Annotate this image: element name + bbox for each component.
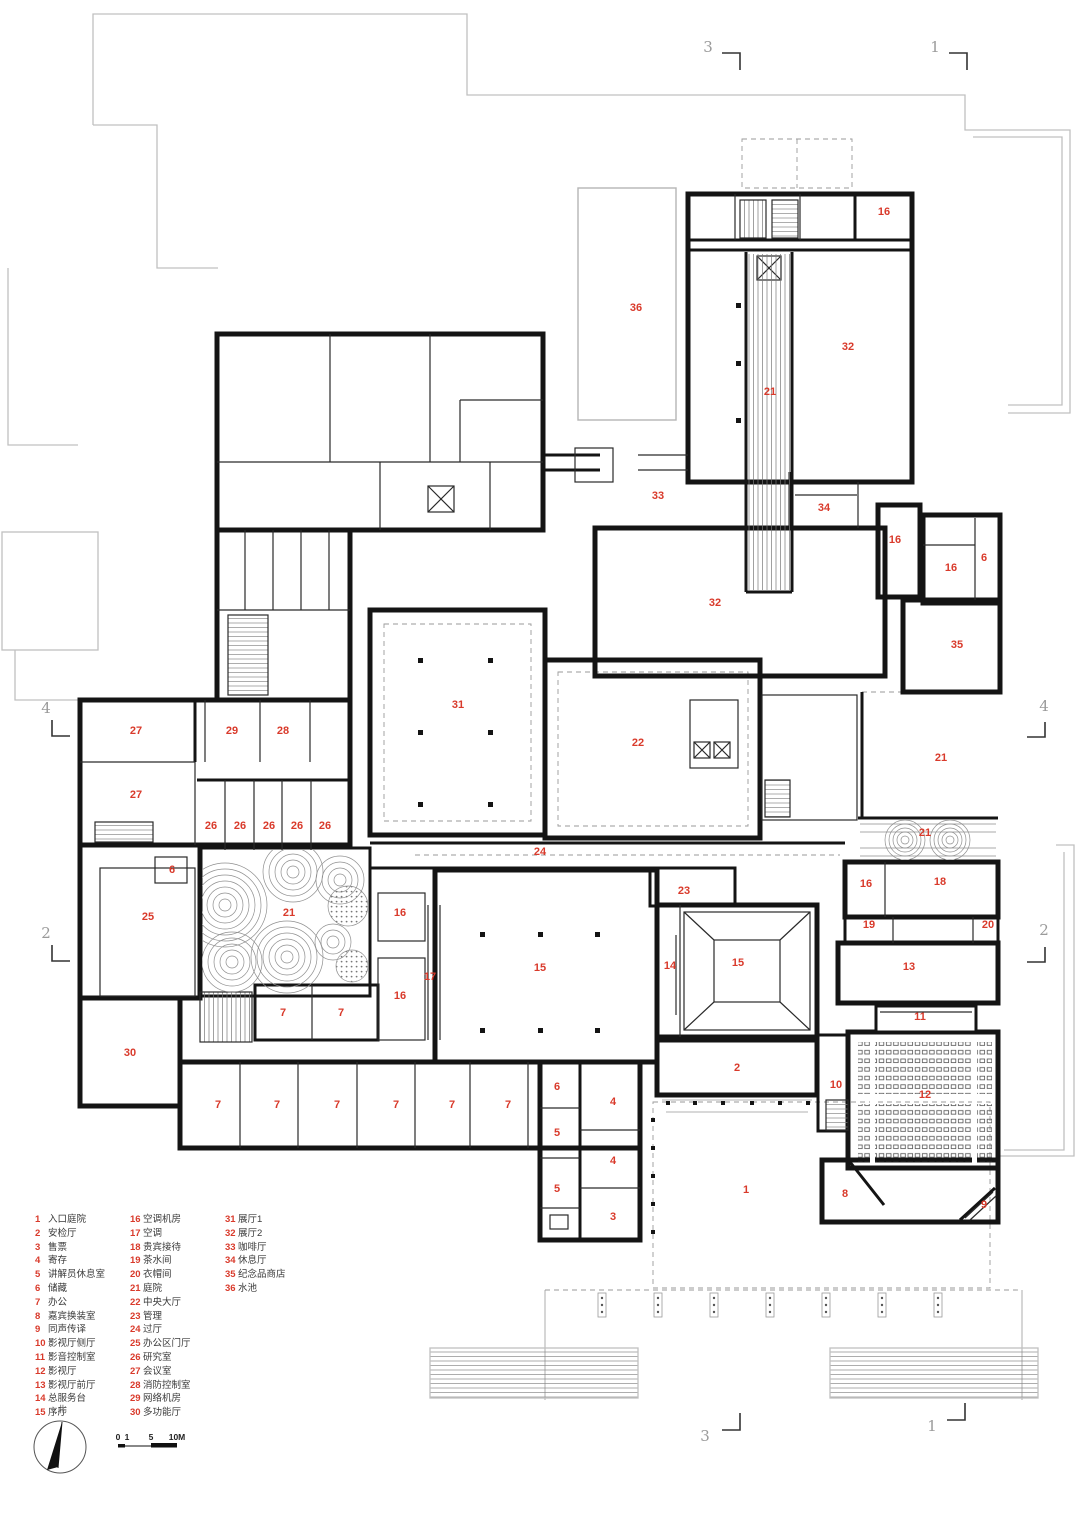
scale-tick-1: 1 xyxy=(125,1432,130,1442)
room-label-7: 7 xyxy=(280,1007,286,1019)
north-arrow xyxy=(34,1421,86,1473)
legend-item-number: 14 xyxy=(35,1392,48,1406)
grid-marker-1: 1 xyxy=(927,1417,937,1435)
room-label-33: 33 xyxy=(652,490,664,502)
legend-item-number: 30 xyxy=(130,1406,143,1420)
scale-bar xyxy=(118,1443,177,1448)
legend-item-label: 售票 xyxy=(48,1242,67,1253)
room-label-21: 21 xyxy=(764,386,776,398)
room-label-18: 18 xyxy=(934,876,946,888)
room-label-20: 20 xyxy=(982,919,994,931)
legend-item-34: 34休息厅 xyxy=(225,1254,320,1268)
legend-column-3: 31展厅132展厅233咖啡厅34休息厅35纪念品商店36水池 xyxy=(225,1213,320,1296)
room-label-27: 27 xyxy=(130,725,142,737)
legend-item-26: 26研究室 xyxy=(130,1351,225,1365)
room-label-14: 14 xyxy=(664,960,676,972)
legend-item-label: 影视厅前厅 xyxy=(48,1380,96,1391)
legend-item-label: 寄存 xyxy=(48,1255,67,1266)
room-label-19: 19 xyxy=(863,919,875,931)
legend-item-10: 10影视厅侧厅 xyxy=(35,1337,130,1351)
legend-item-13: 13影视厅前厅 xyxy=(35,1379,130,1393)
legend-item-25: 25办公区门厅 xyxy=(130,1337,225,1351)
legend-item-29: 29网络机房 xyxy=(130,1392,225,1406)
room-label-34: 34 xyxy=(818,502,830,514)
legend-item-18: 18贵宾接待 xyxy=(130,1241,225,1255)
room-label-5: 5 xyxy=(554,1127,560,1139)
grid-marker-2: 2 xyxy=(41,924,51,942)
room-label-26: 26 xyxy=(291,820,303,832)
room-label-22: 22 xyxy=(632,737,644,749)
room-label-25: 25 xyxy=(142,911,154,923)
legend: 1入口庭院2安检厅3售票4寄存5讲解员休息室6储藏7办公8嘉宾换装室9同声传译1… xyxy=(35,1213,320,1420)
legend-item-28: 28消防控制室 xyxy=(130,1379,225,1393)
legend-item-15: 15序厅 xyxy=(35,1406,130,1420)
room-label-6: 6 xyxy=(169,864,175,876)
legend-item-number: 31 xyxy=(225,1213,238,1227)
legend-item-label: 消防控制室 xyxy=(143,1380,191,1391)
scale-tick-5: 5 xyxy=(149,1432,154,1442)
legend-item-number: 8 xyxy=(35,1310,48,1324)
legend-item-label: 影视厅侧厅 xyxy=(48,1338,96,1349)
legend-item-label: 讲解员休息室 xyxy=(48,1269,105,1280)
legend-item-number: 1 xyxy=(35,1213,48,1227)
legend-item-label: 会议室 xyxy=(143,1366,172,1377)
legend-item-label: 茶水间 xyxy=(143,1255,172,1266)
legend-item-9: 9同声传译 xyxy=(35,1323,130,1337)
legend-item-17: 17空调 xyxy=(130,1227,225,1241)
legend-item-number: 17 xyxy=(130,1227,143,1241)
legend-item-label: 中央大厅 xyxy=(143,1297,181,1308)
legend-item-11: 11影音控制室 xyxy=(35,1351,130,1365)
legend-item-33: 33咖啡厅 xyxy=(225,1241,320,1255)
legend-item-label: 入口庭院 xyxy=(48,1214,86,1225)
legend-item-label: 展厅1 xyxy=(238,1214,262,1225)
room-label-21: 21 xyxy=(283,907,295,919)
scale-tick-0: 0 xyxy=(116,1432,121,1442)
floor-plan-sheet: 3616322133341616632353122212729282726262… xyxy=(0,0,1080,1526)
room-label-7: 7 xyxy=(274,1099,280,1111)
room-label-32: 32 xyxy=(842,341,854,353)
grid-marker-3: 3 xyxy=(700,1427,710,1445)
room-label-6: 6 xyxy=(981,552,987,564)
legend-item-12: 12影视厅 xyxy=(35,1365,130,1379)
room-label-7: 7 xyxy=(338,1007,344,1019)
legend-item-label: 影视厅 xyxy=(48,1366,77,1377)
legend-item-label: 储藏 xyxy=(48,1283,67,1294)
legend-item-number: 2 xyxy=(35,1227,48,1241)
legend-column-1: 1入口庭院2安检厅3售票4寄存5讲解员休息室6储藏7办公8嘉宾换装室9同声传译1… xyxy=(35,1213,130,1420)
legend-item-14: 14总服务台 xyxy=(35,1392,130,1406)
room-label-16: 16 xyxy=(878,206,890,218)
room-label-24: 24 xyxy=(534,846,546,858)
legend-item-30: 30多功能厅 xyxy=(130,1406,225,1420)
legend-item-label: 咖啡厅 xyxy=(238,1242,267,1253)
legend-item-label: 展厅2 xyxy=(238,1228,262,1239)
legend-item-number: 33 xyxy=(225,1241,238,1255)
legend-item-2: 2安检厅 xyxy=(35,1227,130,1241)
legend-item-number: 25 xyxy=(130,1337,143,1351)
room-label-23: 23 xyxy=(678,885,690,897)
legend-item-number: 5 xyxy=(35,1268,48,1282)
room-label-36: 36 xyxy=(630,302,642,314)
legend-item-label: 研究室 xyxy=(143,1352,172,1363)
legend-item-20: 20衣帽间 xyxy=(130,1268,225,1282)
legend-item-number: 6 xyxy=(35,1282,48,1296)
room-label-26: 26 xyxy=(205,820,217,832)
room-label-4: 4 xyxy=(610,1155,616,1167)
room-label-28: 28 xyxy=(277,725,289,737)
room-label-16: 16 xyxy=(860,878,872,890)
legend-item-number: 18 xyxy=(130,1241,143,1255)
legend-item-5: 5讲解员休息室 xyxy=(35,1268,130,1282)
legend-item-number: 20 xyxy=(130,1268,143,1282)
room-label-29: 29 xyxy=(226,725,238,737)
room-label-3: 3 xyxy=(610,1211,616,1223)
legend-item-label: 办公 xyxy=(48,1297,67,1308)
room-label-30: 30 xyxy=(124,1047,136,1059)
room-label-5: 5 xyxy=(554,1183,560,1195)
legend-item-label: 过厅 xyxy=(143,1324,162,1335)
room-label-2: 2 xyxy=(734,1062,740,1074)
legend-item-number: 4 xyxy=(35,1254,48,1268)
legend-item-3: 3售票 xyxy=(35,1241,130,1255)
room-label-32: 32 xyxy=(709,597,721,609)
room-label-16: 16 xyxy=(394,990,406,1002)
grid-marker-3: 3 xyxy=(703,38,713,56)
legend-item-label: 网络机房 xyxy=(143,1393,181,1404)
north-label: 北 xyxy=(57,1403,66,1416)
legend-item-label: 总服务台 xyxy=(48,1393,86,1404)
legend-item-number: 27 xyxy=(130,1365,143,1379)
room-label-7: 7 xyxy=(215,1099,221,1111)
room-label-8: 8 xyxy=(842,1188,848,1200)
room-label-35: 35 xyxy=(951,639,963,651)
legend-item-number: 32 xyxy=(225,1227,238,1241)
grid-marker-2: 2 xyxy=(1039,921,1049,939)
legend-item-label: 空调机房 xyxy=(143,1214,181,1225)
legend-item-number: 10 xyxy=(35,1337,48,1351)
legend-item-label: 水池 xyxy=(238,1283,257,1294)
room-label-26: 26 xyxy=(234,820,246,832)
legend-item-22: 22中央大厅 xyxy=(130,1296,225,1310)
zen-garden-ripples xyxy=(183,842,368,993)
scale-tick-10m: 10M xyxy=(169,1432,186,1442)
legend-item-1: 1入口庭院 xyxy=(35,1213,130,1227)
legend-item-number: 21 xyxy=(130,1282,143,1296)
legend-item-number: 29 xyxy=(130,1392,143,1406)
legend-item-16: 16空调机房 xyxy=(130,1213,225,1227)
legend-item-number: 9 xyxy=(35,1323,48,1337)
legend-item-31: 31展厅1 xyxy=(225,1213,320,1227)
grid-marker-1: 1 xyxy=(930,38,940,56)
plaza-pavers xyxy=(598,1293,942,1317)
legend-item-number: 26 xyxy=(130,1351,143,1365)
pool-outline xyxy=(578,188,676,420)
room-label-7: 7 xyxy=(334,1099,340,1111)
grid-marker-4: 4 xyxy=(1039,697,1049,715)
legend-item-number: 12 xyxy=(35,1365,48,1379)
room-label-17: 17 xyxy=(424,971,436,983)
legend-item-number: 34 xyxy=(225,1254,238,1268)
room-label-13: 13 xyxy=(903,961,915,973)
room-label-10: 10 xyxy=(830,1079,842,1091)
legend-item-label: 衣帽间 xyxy=(143,1269,172,1280)
legend-item-6: 6储藏 xyxy=(35,1282,130,1296)
legend-item-21: 21庭院 xyxy=(130,1282,225,1296)
room-label-7: 7 xyxy=(505,1099,511,1111)
legend-item-number: 36 xyxy=(225,1282,238,1296)
room-label-21: 21 xyxy=(935,752,947,764)
legend-item-23: 23管理 xyxy=(130,1310,225,1324)
room-label-7: 7 xyxy=(449,1099,455,1111)
legend-item-7: 7办公 xyxy=(35,1296,130,1310)
room-label-27: 27 xyxy=(130,789,142,801)
legend-item-number: 7 xyxy=(35,1296,48,1310)
room-label-16: 16 xyxy=(945,562,957,574)
legend-item-35: 35纪念品商店 xyxy=(225,1268,320,1282)
legend-column-2: 16空调机房17空调18贵宾接待19茶水间20衣帽间21庭院22中央大厅23管理… xyxy=(130,1213,225,1420)
legend-item-8: 8嘉宾换装室 xyxy=(35,1310,130,1324)
ramp-stripes xyxy=(748,254,790,590)
legend-item-number: 13 xyxy=(35,1379,48,1393)
room-label-9: 9 xyxy=(981,1199,987,1211)
ripple-strip xyxy=(860,820,996,860)
legend-item-label: 办公区门厅 xyxy=(143,1338,191,1349)
legend-item-number: 11 xyxy=(35,1351,48,1365)
grid-marker-4: 4 xyxy=(41,699,51,717)
room-label-26: 26 xyxy=(263,820,275,832)
legend-item-4: 4寄存 xyxy=(35,1254,130,1268)
room-label-15: 15 xyxy=(534,962,546,974)
legend-item-label: 同声传译 xyxy=(48,1324,86,1335)
room-label-16: 16 xyxy=(889,534,901,546)
legend-item-number: 35 xyxy=(225,1268,238,1282)
legend-item-label: 管理 xyxy=(143,1311,162,1322)
legend-item-32: 32展厅2 xyxy=(225,1227,320,1241)
legend-item-36: 36水池 xyxy=(225,1282,320,1296)
room-label-31: 31 xyxy=(452,699,464,711)
legend-item-label: 影音控制室 xyxy=(48,1352,96,1363)
legend-item-19: 19茶水间 xyxy=(130,1254,225,1268)
room-label-12: 12 xyxy=(919,1089,931,1101)
legend-item-label: 庭院 xyxy=(143,1283,162,1294)
room-label-26: 26 xyxy=(319,820,331,832)
room-label-4: 4 xyxy=(610,1096,616,1108)
legend-item-label: 嘉宾换装室 xyxy=(48,1311,96,1322)
legend-item-label: 空调 xyxy=(143,1228,162,1239)
legend-item-27: 27会议室 xyxy=(130,1365,225,1379)
legend-item-number: 24 xyxy=(130,1323,143,1337)
legend-item-number: 15 xyxy=(35,1406,48,1420)
legend-item-number: 28 xyxy=(130,1379,143,1393)
room-label-21: 21 xyxy=(919,827,931,839)
legend-item-number: 3 xyxy=(35,1241,48,1255)
room-label-11: 11 xyxy=(914,1011,926,1023)
room-label-6: 6 xyxy=(554,1081,560,1093)
room-label-16: 16 xyxy=(394,907,406,919)
room-label-1: 1 xyxy=(743,1184,749,1196)
legend-item-number: 19 xyxy=(130,1254,143,1268)
room-label-7: 7 xyxy=(393,1099,399,1111)
legend-item-label: 多功能厅 xyxy=(143,1407,181,1418)
legend-item-number: 16 xyxy=(130,1213,143,1227)
legend-item-label: 纪念品商店 xyxy=(238,1269,286,1280)
legend-item-number: 23 xyxy=(130,1310,143,1324)
legend-item-label: 安检厅 xyxy=(48,1228,77,1239)
legend-item-24: 24过厅 xyxy=(130,1323,225,1337)
room-label-15: 15 xyxy=(732,957,744,969)
legend-item-number: 22 xyxy=(130,1296,143,1310)
legend-item-label: 贵宾接待 xyxy=(143,1242,181,1253)
legend-item-label: 休息厅 xyxy=(238,1255,267,1266)
